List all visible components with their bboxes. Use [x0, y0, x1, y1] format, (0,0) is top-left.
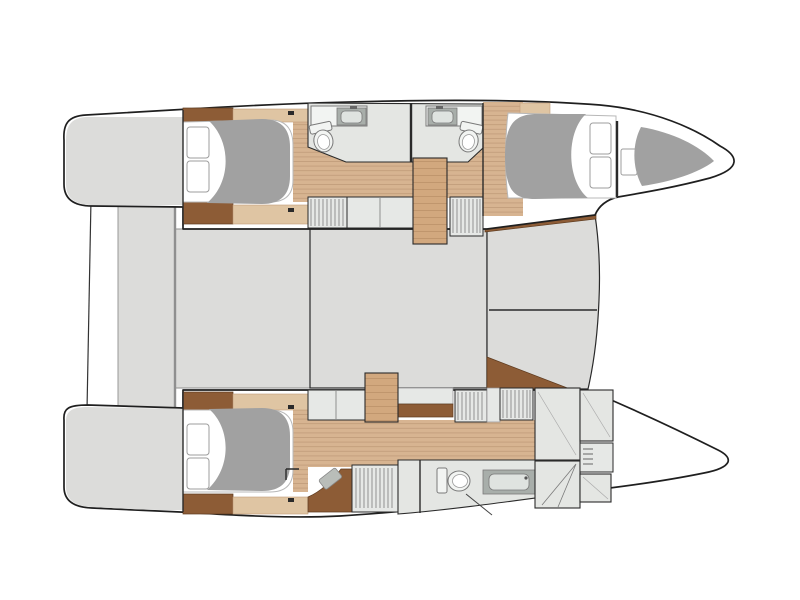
headboard-shelf — [183, 392, 233, 410]
foredeck — [487, 215, 600, 389]
starboard-aft-cabin-floor — [293, 410, 308, 492]
pillow — [590, 123, 611, 154]
shower-stall — [535, 461, 580, 508]
transom-connecting-line — [87, 199, 91, 410]
door-hinge — [288, 208, 294, 212]
headboard-shelf — [183, 108, 233, 122]
door-hinge — [288, 111, 294, 115]
wardrobe-locker — [308, 197, 347, 228]
pillow — [187, 458, 209, 489]
faucet — [436, 106, 443, 109]
starboard-bathroom — [398, 460, 580, 515]
wardrobe-locker — [450, 197, 483, 236]
footboard-shelf — [183, 494, 233, 514]
washer-locker — [580, 443, 613, 472]
side-shelf — [233, 205, 308, 224]
cabinet — [398, 388, 453, 404]
companionway-stairs — [365, 373, 398, 422]
sink — [341, 111, 362, 123]
side-shelf — [233, 497, 308, 514]
sink — [489, 474, 529, 490]
floor-plan-canvas — [0, 0, 800, 600]
side-shelf — [233, 394, 308, 410]
starboard-swim-platform — [66, 407, 183, 510]
aft-cockpit — [118, 206, 310, 411]
door-hinge — [288, 498, 294, 502]
saloon — [310, 229, 487, 388]
sink — [432, 111, 453, 123]
shelf-trim — [398, 404, 453, 417]
locker-louvers — [458, 392, 482, 420]
bridge-deck — [87, 199, 600, 411]
cabinet — [308, 390, 365, 420]
wardrobe-locker — [500, 388, 533, 420]
companionway-stairs — [413, 158, 447, 244]
port-bathrooms — [308, 103, 483, 162]
starboard-bow-compartments — [580, 390, 613, 502]
cabinet — [487, 388, 500, 422]
footboard-shelf — [183, 202, 233, 224]
wardrobe-locker — [352, 465, 398, 512]
pillow — [187, 161, 209, 192]
pillow — [590, 157, 611, 188]
port-swim-platform — [66, 117, 183, 205]
faucet — [350, 106, 357, 109]
door-hinge — [288, 405, 294, 409]
faucet — [524, 476, 527, 479]
pillow — [187, 424, 209, 455]
pillow — [187, 127, 209, 158]
catamaran-floor-plan — [0, 0, 800, 600]
